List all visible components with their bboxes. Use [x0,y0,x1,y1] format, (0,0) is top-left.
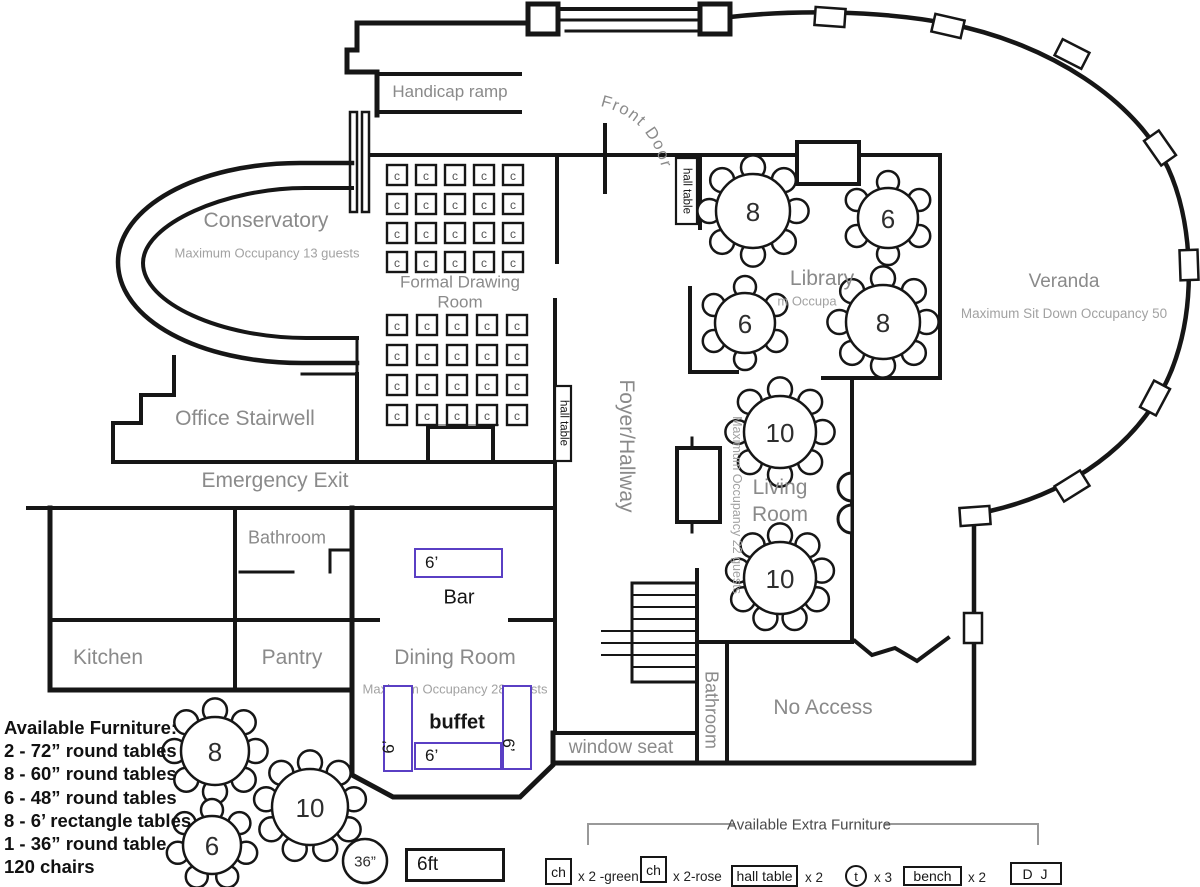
chair-glyph: c [484,379,490,393]
buffet-label: buffet [429,712,485,735]
floor-plan: Front Door ccccccccccccccccccccccccccccc… [0,0,1200,887]
furniture-item: 120 chairs [4,855,191,878]
living-room-label: Living Room [742,474,818,528]
extra-furniture-title: Available Extra Furniture [727,816,891,833]
chair-glyph: c [394,349,400,363]
veranda-label: Veranda [1029,271,1100,293]
chair-glyph: c [510,198,516,212]
buffet-left-size: 6’ [379,740,399,753]
chair-glyph: c [484,319,490,333]
extra-hall-table-qty: x 2 [805,870,823,885]
sample-6ft-label: 6ft [417,854,438,876]
chair-glyph: c [510,227,516,241]
chair-glyph: c [423,256,429,270]
furniture-item: 8 - 6’ rectangle tables [4,809,191,832]
table-seat-count: 10 [766,418,795,448]
chair-glyph: c [454,319,460,333]
extra-t-circle: t [845,865,867,887]
wall-break-zigzag [855,638,948,661]
bathroom-upper-label: Bathroom [248,528,326,549]
available-furniture-title: Available Furniture: [4,716,191,739]
chair-grid: cccccccccccccccccccc [387,315,527,425]
chair-glyph: c [514,379,520,393]
no-access-label: No Access [773,696,872,720]
furniture-item: 2 - 72” round tables [4,739,191,762]
box-label: ch [551,864,566,880]
hall-table-top-label: hall table [679,168,692,214]
conservatory-occupancy: Maximum Occupancy 13 guests [175,247,360,262]
pantry-label: Pantry [262,646,323,670]
chair-glyph: c [454,409,460,423]
chair-glyph: c [394,379,400,393]
table-seat-count: 6 [205,831,219,861]
chair-glyph: c [481,256,487,270]
chair-glyph: c [454,379,460,393]
door-swing [838,505,852,533]
chair-glyph: c [481,169,487,183]
veranda-rail [730,12,1189,763]
extra-hall-table-box: hall table [731,865,798,887]
chair-glyph: c [452,169,458,183]
kitchen-label: Kitchen [73,646,143,670]
chair-glyph: c [510,256,516,270]
furniture-item: 8 - 60” round tables [4,762,191,785]
stairwell-steps-wall [113,357,174,462]
sample-6ft-table: 6ft [405,848,505,882]
table-seat-count: 8 [876,308,890,338]
office-stairwell-label: Office Stairwell [175,407,315,431]
available-furniture-list: Available Furniture: 2 - 72” round table… [4,716,191,878]
chair-glyph: c [514,349,520,363]
table-seat-count: 36” [354,854,376,871]
chair-glyph: c [424,349,430,363]
buffet-table-center: 6’ [414,742,502,770]
chair-glyph: c [481,227,487,241]
conservatory-label: Conservatory [204,209,329,233]
buffet-center-size: 6’ [425,746,438,766]
chair-glyph: c [423,198,429,212]
library-label: Library [790,267,854,291]
table-seat-count: 6 [881,204,895,234]
extra-chair-rose-box: ch [640,856,667,883]
chair-glyph: c [423,227,429,241]
round-table-36: 36” [343,839,387,883]
legend-bracket-right [885,823,1039,845]
chair-glyph: c [514,409,520,423]
chair-glyph: c [452,227,458,241]
extra-bench-box: bench [903,866,962,886]
extra-bench-qty: x 2 [968,870,986,885]
table-seat-count: 8 [746,197,760,227]
living-room-occupancy: Maximum Occupancy 22 guests [730,416,744,594]
chair-glyph: c [454,349,460,363]
chair-glyph: c [452,198,458,212]
extra-dj-box: D J [1010,862,1062,885]
chair-glyph: c [424,379,430,393]
chair-glyph: c [394,409,400,423]
chair-glyph: c [484,349,490,363]
chair-glyph: c [394,319,400,333]
table-seat-count: 10 [766,564,795,594]
bathroom-lower-label: Bathroom [701,671,722,749]
box-label: hall table [736,868,792,884]
box-label: ch [646,862,661,878]
hall-table-side-label: hall table [556,400,569,446]
dining-room-label: Dining Room [394,646,515,670]
conservatory-outer-wall [118,163,357,363]
veranda-occupancy: Maximum Sit Down Occupancy 50 [961,306,1167,322]
chair-glyph: c [394,227,400,241]
box-label: t [854,869,858,884]
formal-drawing-room-label: Formal Drawing Room [385,272,535,311]
chair-glyph: c [481,198,487,212]
chair-glyph: c [423,169,429,183]
round-table-8: 8 [697,155,808,266]
window-seat-label: window seat [569,737,674,759]
chair-glyph: c [424,319,430,333]
bar-table-size: 6’ [425,553,438,573]
buffet-table-right: 6’ [502,685,532,770]
chair-grid: cccccccccccccccccccc [387,165,523,272]
library-console-table [797,142,859,184]
bar-label: Bar [443,587,474,610]
table-seat-count: 10 [296,793,325,823]
generated-furniture: cccccccccccccccccccccccccccccccccccccccc… [162,155,938,887]
chair-glyph: c [514,319,520,333]
porch-post [528,4,558,34]
emergency-exit-label: Emergency Exit [201,469,348,493]
chair-glyph: c [394,169,400,183]
bar-table: 6’ [414,548,503,578]
chair-glyph: c [452,256,458,270]
foyer-hallway-label: Foyer/Hallway [614,379,638,512]
door-swing [838,473,852,501]
furniture-item: 6 - 48” round tables [4,786,191,809]
chair-glyph: c [394,198,400,212]
extra-chair-rose-qty: x 2-rose [673,869,722,884]
box-label: bench [913,868,951,884]
buffet-table-left: 6’ [383,685,413,772]
extra-chair-green-box: ch [545,858,572,885]
stairs [602,583,697,682]
handicap-ramp-label: Handicap ramp [392,82,507,102]
porch-post [700,4,730,34]
chair-glyph: c [510,169,516,183]
library-occupancy-fragment: m Occupa [777,295,836,310]
chair-glyph: c [484,409,490,423]
foyer-console-table [677,448,720,522]
extra-t-qty: x 3 [874,870,892,885]
box-label: D J [1023,866,1050,882]
furniture-item: 1 - 36” round table [4,832,191,855]
chair-glyph: c [394,256,400,270]
table-seat-count: 6 [738,309,752,339]
round-table-6: 6 [703,276,787,370]
table-seat-count: 8 [208,737,222,767]
extra-chair-green-qty: x 2 -green [578,869,639,884]
front-door-label: Front Door [599,92,675,170]
chair-glyph: c [424,409,430,423]
legend-bracket-left [587,823,735,845]
